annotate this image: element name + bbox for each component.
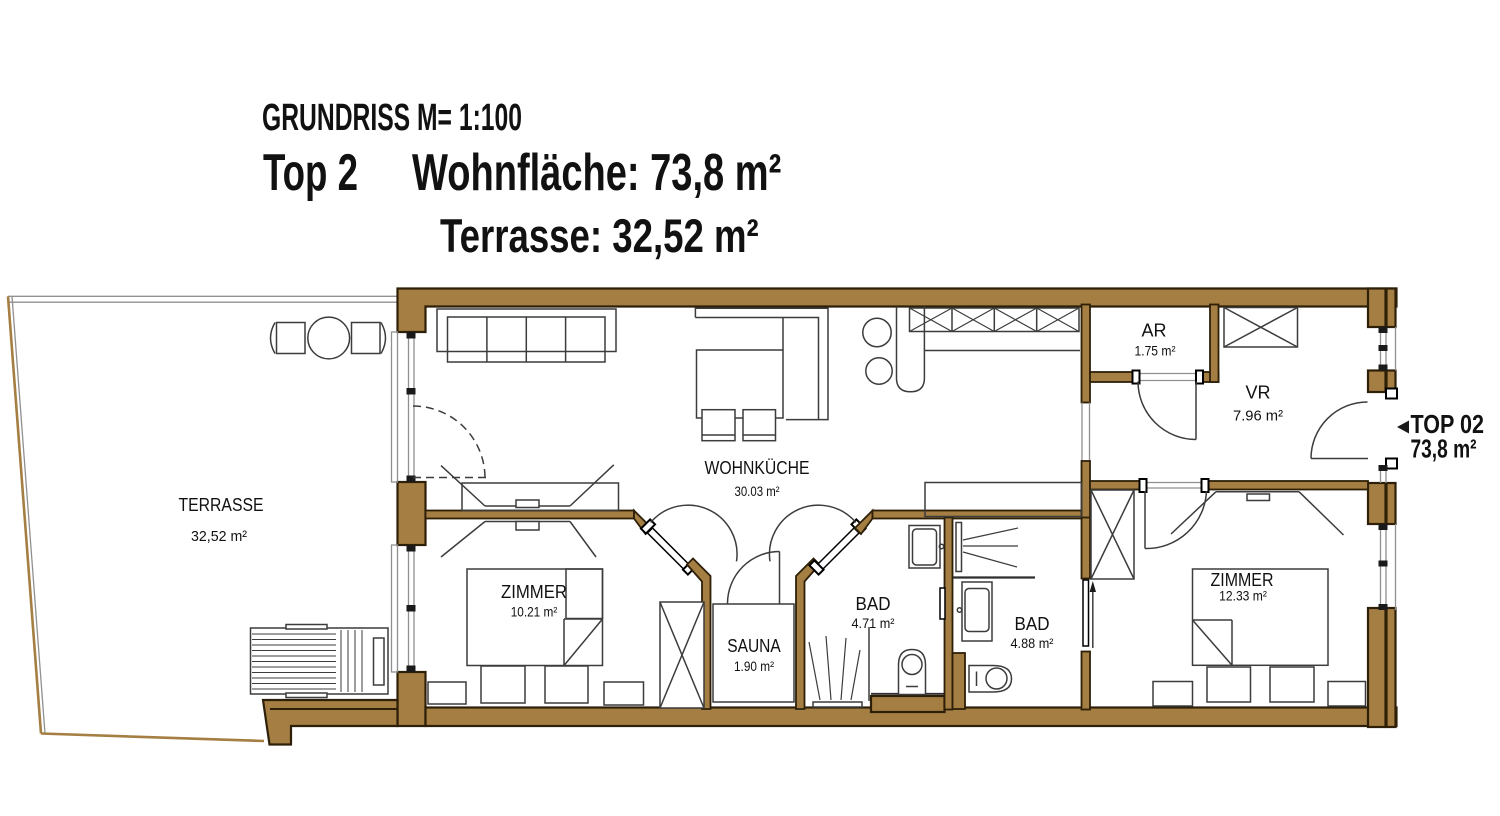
- svg-text:TERRASSE: TERRASSE: [179, 495, 264, 515]
- svg-text:1.75 m²: 1.75 m²: [1135, 343, 1176, 359]
- svg-text:ZIMMER: ZIMMER: [501, 582, 567, 602]
- svg-text:4.71 m²: 4.71 m²: [852, 615, 895, 631]
- svg-text:4.88 m²: 4.88 m²: [1011, 635, 1054, 651]
- svg-text:10.21 m²: 10.21 m²: [511, 604, 558, 620]
- svg-text:Wohnfläche: 73,8 m²: Wohnfläche: 73,8 m²: [412, 143, 781, 201]
- svg-text:VR: VR: [1245, 383, 1270, 403]
- svg-text:BAD: BAD: [856, 594, 891, 614]
- svg-text:30.03 m²: 30.03 m²: [735, 483, 780, 499]
- svg-text:32,52 m²: 32,52 m²: [191, 528, 247, 545]
- svg-text:7.96 m²: 7.96 m²: [1233, 408, 1283, 425]
- svg-text:AR: AR: [1141, 321, 1166, 341]
- svg-text:73,8 m²: 73,8 m²: [1411, 434, 1477, 464]
- svg-text:Terrasse: 32,52 m²: Terrasse: 32,52 m²: [440, 210, 759, 262]
- svg-text:WOHNKÜCHE: WOHNKÜCHE: [705, 458, 810, 478]
- svg-text:GRUNDRISS M= 1:100: GRUNDRISS M= 1:100: [262, 96, 522, 139]
- svg-text:BAD: BAD: [1015, 614, 1050, 634]
- svg-text:SAUNA: SAUNA: [727, 636, 781, 656]
- svg-text:Top 2: Top 2: [263, 143, 358, 202]
- svg-text:1.90 m²: 1.90 m²: [734, 658, 774, 674]
- svg-text:12.33 m²: 12.33 m²: [1219, 588, 1267, 604]
